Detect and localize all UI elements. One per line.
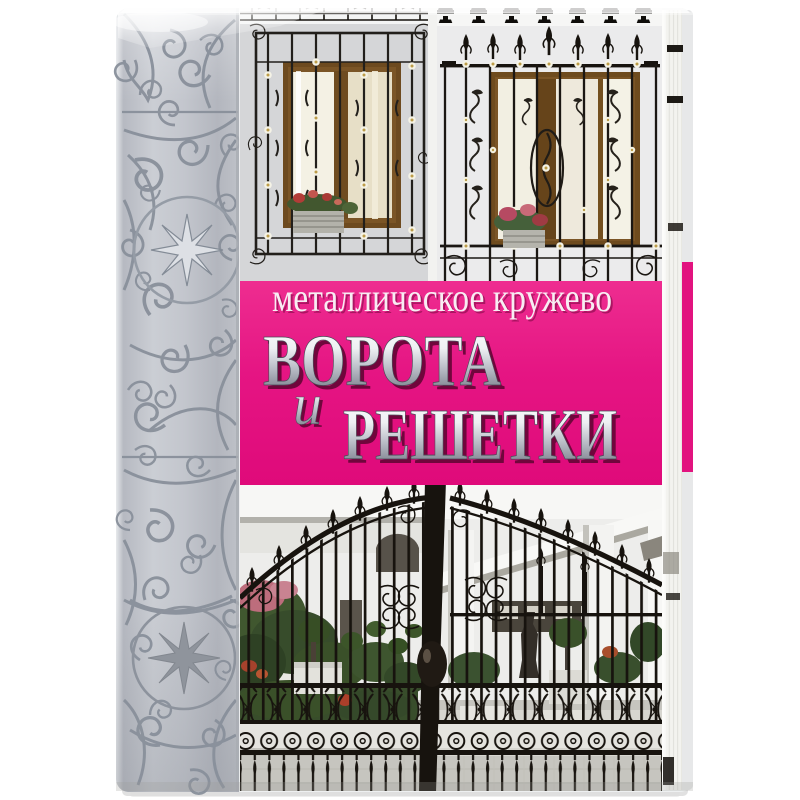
svg-text:и: и <box>293 372 322 437</box>
svg-text:РЕШЕТКИ: РЕШЕТКИ <box>343 394 617 475</box>
svg-text:металлическое кружево: металлическое кружево <box>272 275 612 320</box>
